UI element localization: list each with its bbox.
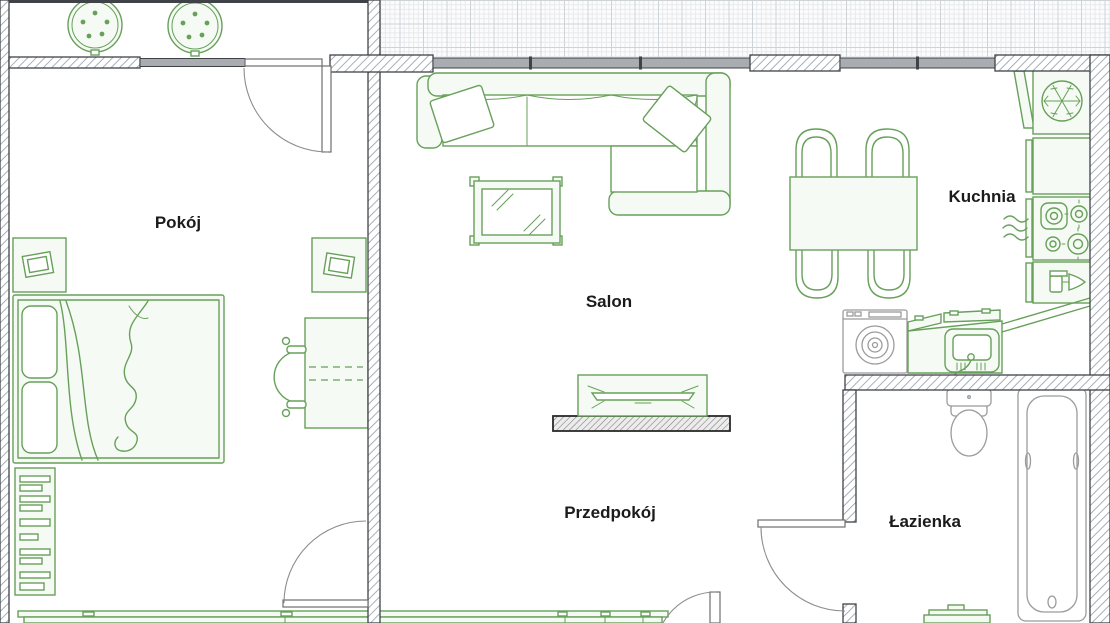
balcony-wall (9, 57, 140, 68)
balcony-top-edge (0, 0, 378, 3)
dining-chair (796, 129, 837, 176)
kitchen-cabinet (1033, 138, 1091, 194)
plant-table-icon (168, 0, 222, 56)
top-wall (750, 55, 840, 71)
dining-chair (868, 251, 910, 298)
balcony-door-threshold (245, 59, 322, 66)
fridge (1014, 70, 1091, 134)
bedroom-door (283, 521, 368, 607)
dining-chair (796, 251, 838, 298)
dining-chair (866, 129, 909, 176)
living-room-furniture (417, 73, 730, 431)
steam-vent-icon (1003, 216, 1028, 240)
window-mullion (639, 57, 642, 70)
corner-sofa (417, 73, 730, 215)
outer-wall-right (1090, 55, 1110, 623)
stove (1026, 197, 1094, 260)
counter-edge (1026, 140, 1032, 192)
room-label-przedpokoj: Przedpokój (564, 503, 656, 522)
window-mullion (529, 57, 532, 70)
tv-unit (553, 375, 730, 431)
room-label-kuchnia: Kuchnia (948, 187, 1016, 206)
bathroom-wall-left-stub (843, 604, 856, 623)
floorplan-canvas: Pokój Salon Kuchnia Przedpokój Łazienka (0, 0, 1110, 623)
window (433, 58, 750, 68)
desk-chair (274, 338, 306, 417)
balcony-plant-tables (68, 0, 222, 56)
room-label-lazienka: Łazienka (889, 512, 961, 531)
room-label-pokoj: Pokój (155, 213, 201, 232)
pillow (22, 306, 57, 378)
dishwasher (1026, 262, 1091, 303)
hallway-wardrobe (18, 611, 668, 623)
bathroom-door (758, 520, 845, 611)
tv-stand (553, 416, 730, 431)
outer-wall-left (0, 0, 9, 623)
outdoor-grid-background (378, 0, 1110, 57)
double-bed (13, 295, 224, 463)
coffee-table-mirror (470, 177, 562, 245)
room-label-salon: Salon (586, 292, 632, 311)
floorplan: Pokój Salon Kuchnia Przedpokój Łazienka (0, 0, 1110, 623)
kitchen-furniture (790, 70, 1094, 374)
window-mullion (916, 57, 919, 70)
kitchen-sink-counter (908, 298, 1090, 374)
nightstand-right (312, 238, 366, 292)
toilet-icon (947, 389, 991, 456)
window (140, 59, 245, 67)
bathroom-wall-top (845, 375, 1110, 390)
dining-table (790, 177, 917, 250)
divider-wall (368, 0, 380, 623)
bathroom-fixtures (924, 387, 1086, 623)
plant-table-icon (68, 0, 122, 55)
bathtub-icon (1018, 387, 1086, 621)
bathroom-sink (924, 605, 990, 623)
bedroom-furniture (13, 238, 368, 595)
kitchen-sink-faucet-icon (945, 329, 999, 374)
pillow (22, 382, 57, 453)
desk (305, 318, 368, 428)
washing-machine (843, 310, 907, 373)
balcony-door (244, 66, 331, 152)
wardrobe-shelves (15, 468, 55, 595)
bathroom-wall-left (843, 390, 856, 522)
nightstand-left (13, 238, 66, 292)
counter-edge (1026, 263, 1032, 302)
top-wall (330, 55, 433, 72)
entrance-door (655, 592, 720, 623)
